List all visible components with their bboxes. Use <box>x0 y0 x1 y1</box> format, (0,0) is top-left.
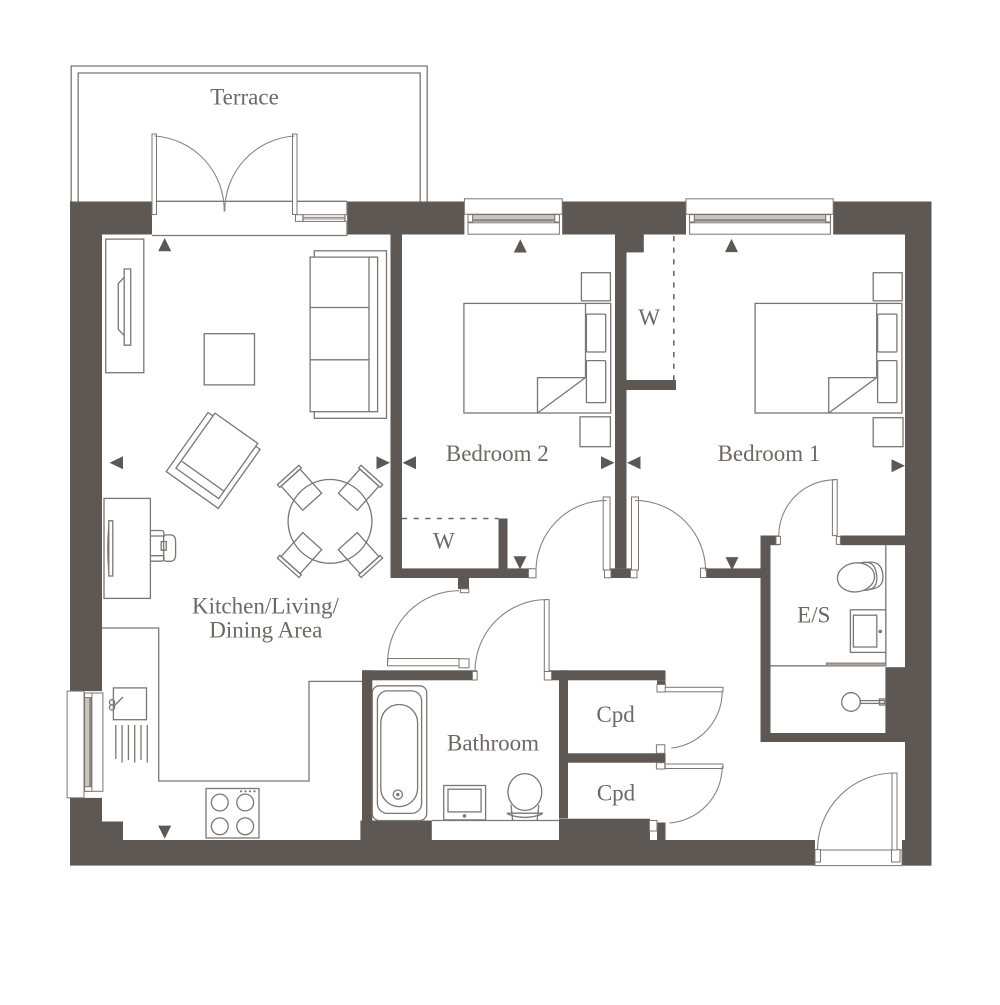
svg-text:Cpd: Cpd <box>596 702 635 727</box>
svg-text:Bedroom 2: Bedroom 2 <box>446 441 549 466</box>
svg-text:Kitchen/Living/: Kitchen/Living/ <box>192 593 340 618</box>
svg-text:Terrace: Terrace <box>210 84 279 109</box>
svg-text:Cpd: Cpd <box>597 780 636 805</box>
svg-text:E/S: E/S <box>797 602 830 627</box>
svg-text:Bedroom 1: Bedroom 1 <box>718 441 821 466</box>
svg-text:W: W <box>638 305 660 330</box>
svg-text:Bathroom: Bathroom <box>447 731 539 756</box>
svg-text:Dining Area: Dining Area <box>209 618 322 643</box>
svg-text:W: W <box>433 529 455 554</box>
